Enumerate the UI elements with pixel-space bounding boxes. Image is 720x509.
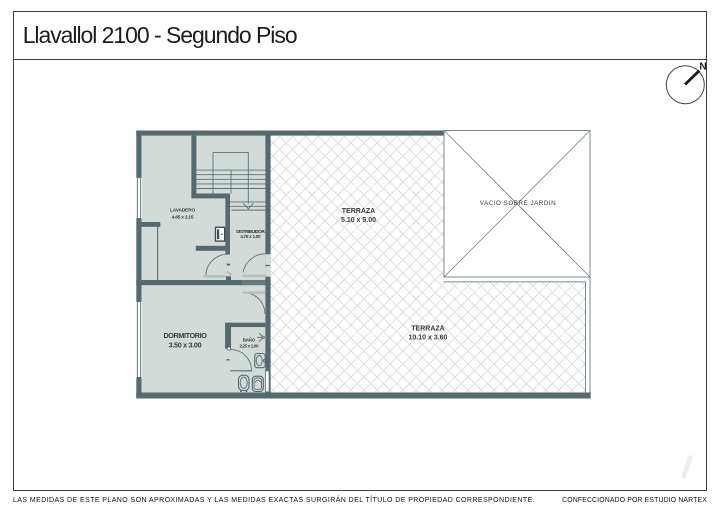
svg-text:10.10 x 3.60: 10.10 x 3.60	[409, 335, 448, 342]
svg-text:4.65 x 2.15: 4.65 x 2.15	[172, 215, 194, 221]
svg-text:VACIO SOBRE JARDIN: VACIO SOBRE JARDIN	[480, 200, 556, 207]
svg-text:CONFECCIONADO POR ESTUDIO NART: CONFECCIONADO POR ESTUDIO NARTEX	[562, 497, 707, 504]
svg-text:2.25 x 1.00: 2.25 x 1.00	[239, 344, 259, 349]
svg-text:DORMITORIO: DORMITORIO	[163, 331, 207, 340]
svg-text:LAS MEDIDAS DE ESTE PLANO SON: LAS MEDIDAS DE ESTE PLANO SON APROXIMADA…	[13, 495, 535, 504]
svg-text:TERRAZA: TERRAZA	[411, 326, 444, 333]
svg-text:LAVADERO: LAVADERO	[170, 208, 196, 214]
svg-text:BAÑO: BAÑO	[243, 338, 256, 343]
svg-text:Llavallol 2100 - Segundo Piso: Llavallol 2100 - Segundo Piso	[23, 22, 297, 48]
svg-text:TERRAZA: TERRAZA	[342, 208, 375, 215]
svg-text:N: N	[699, 62, 706, 73]
svg-text:4.75 x 1.00: 4.75 x 1.00	[240, 234, 261, 239]
svg-text:3.50 x 3.00: 3.50 x 3.00	[169, 341, 202, 350]
svg-text:5.10 x 5.00: 5.10 x 5.00	[341, 217, 376, 224]
